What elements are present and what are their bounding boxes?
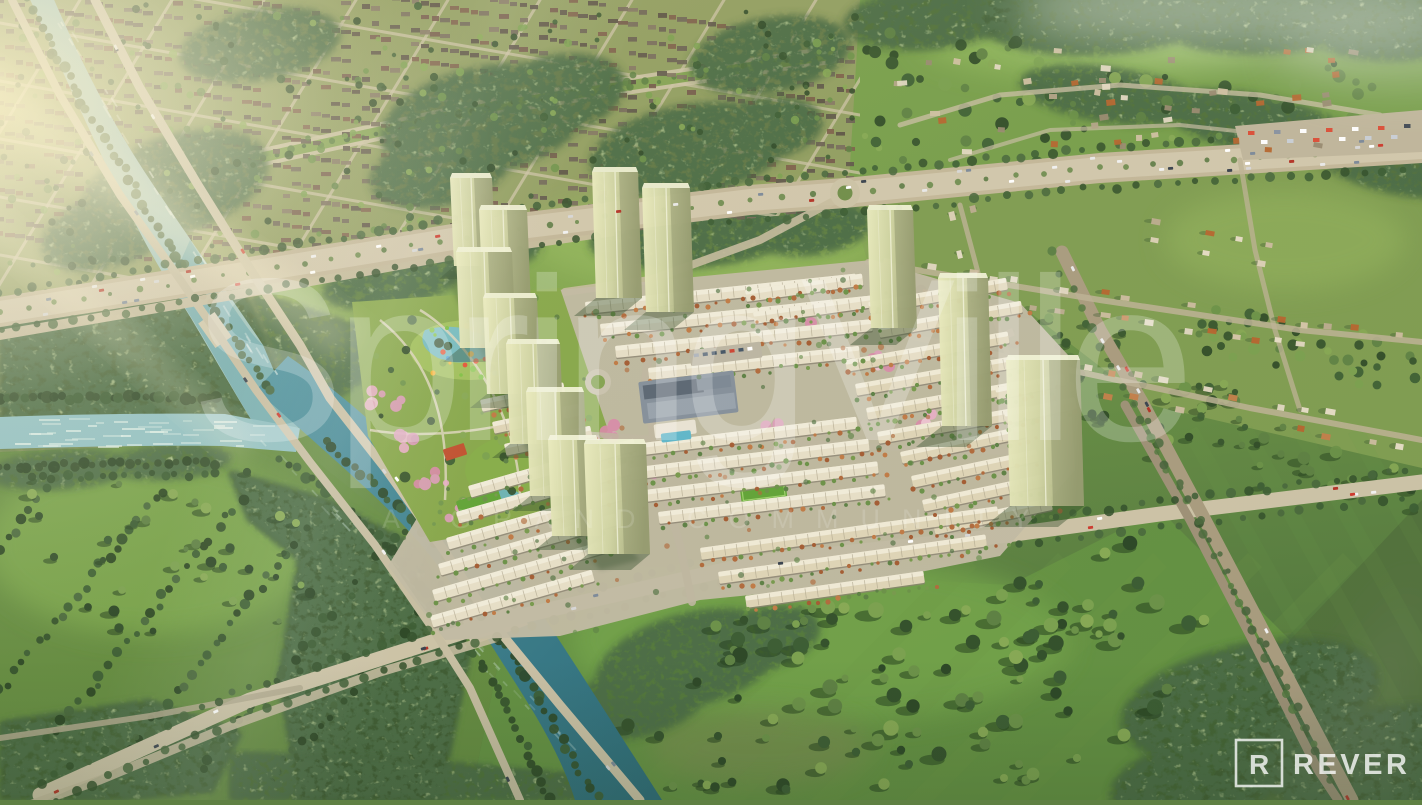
svg-text:A GRAND COMMUNITY: A GRAND COMMUNITY	[382, 504, 1052, 534]
svg-text:R: R	[1249, 749, 1269, 780]
svg-text:REVER: REVER	[1293, 749, 1410, 781]
svg-text:SpringVille: SpringVille	[190, 231, 1195, 490]
